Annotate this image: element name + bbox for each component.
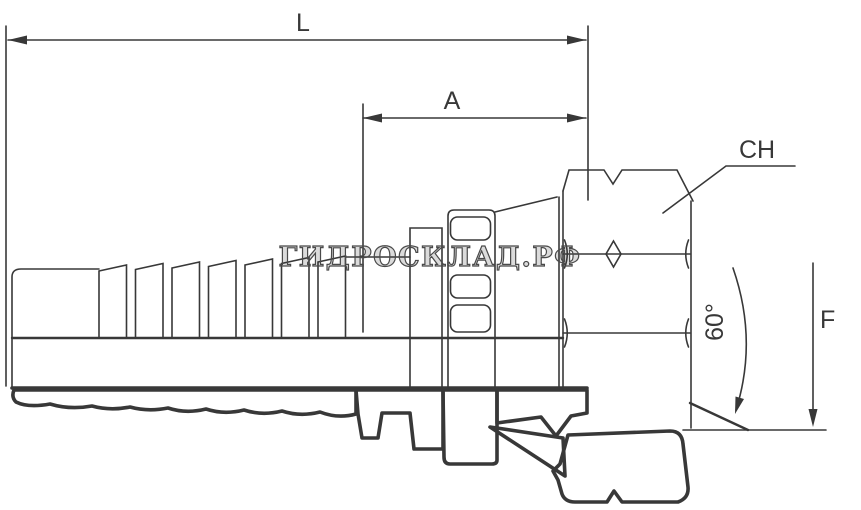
section-groove-zone [356, 390, 443, 449]
label-thread: F [820, 306, 835, 334]
watermark-text: ГИДРОСКЛАД.РФ [279, 242, 582, 273]
technical-drawing-canvas: L A CH 60° F [0, 0, 861, 510]
section-shank-wall [13, 390, 356, 416]
arrowhead-icon [735, 397, 744, 415]
arrowhead-left-icon [8, 36, 27, 45]
dimension-l: L [6, 9, 588, 386]
label-cone-angle: 60° [701, 303, 729, 341]
leader-line-ch [663, 166, 795, 213]
junction-taper-line [495, 197, 557, 212]
label-section-length: A [444, 87, 461, 115]
dimension-f: F [683, 263, 835, 430]
fitting-section-view [12, 388, 688, 502]
shank-tip-outline [12, 269, 99, 388]
arrowhead-down-icon [809, 409, 818, 427]
arrowhead-right-icon [567, 36, 586, 45]
arrowhead-right-icon [567, 114, 586, 123]
label-hex-size: CH [739, 136, 775, 164]
label-overall-length: L [296, 9, 310, 37]
arrowhead-left-icon [363, 114, 382, 123]
dimension-cone-angle: 60° [701, 268, 746, 414]
callout-hex-size: CH [663, 136, 795, 213]
angle-arc [733, 268, 746, 410]
cone-flank-line [690, 403, 748, 430]
crimp-collar-outline [448, 210, 495, 388]
section-nut-body [553, 431, 688, 502]
